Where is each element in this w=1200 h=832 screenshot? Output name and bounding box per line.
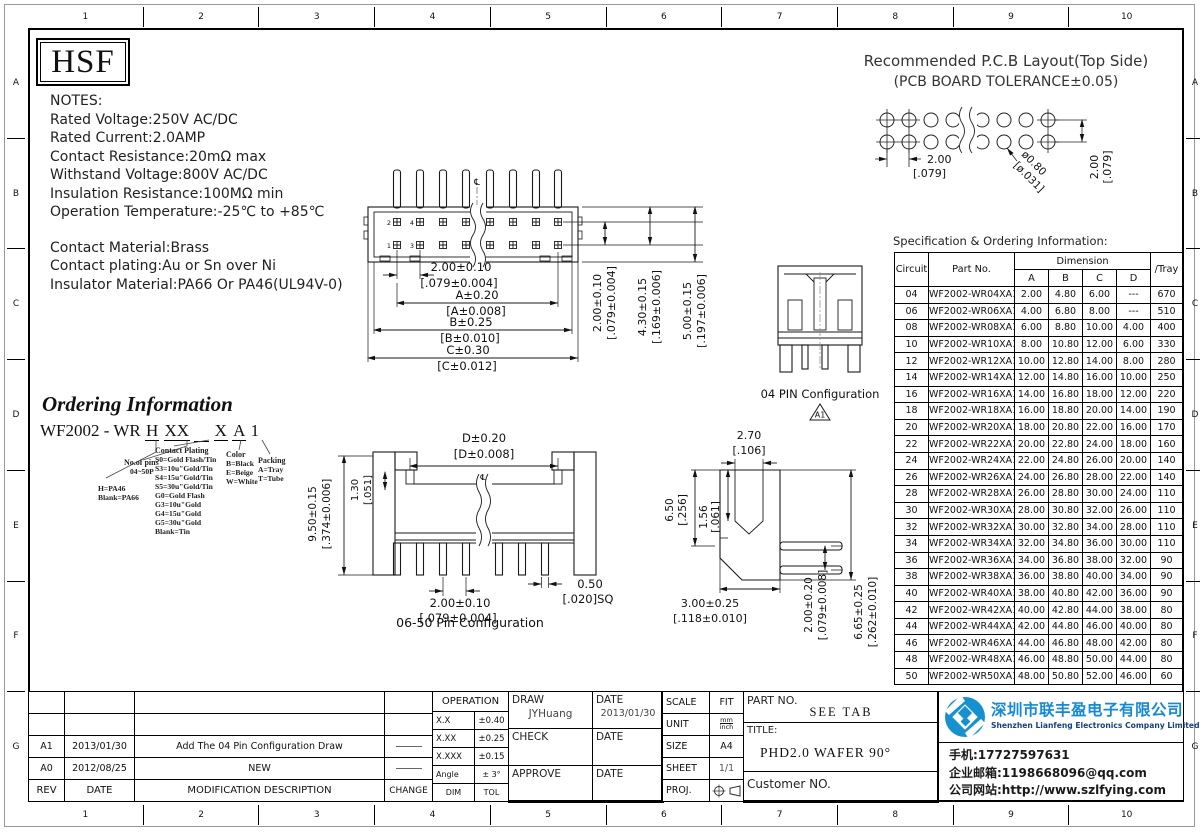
zone-row-label: G [7,692,25,802]
notes-lines: Rated Voltage:250V AC/DCRated Current:2.… [50,111,390,222]
tol-label: X.X [433,712,475,730]
plating-option: Blank=Tin [155,527,216,536]
tol-value: ±0.15 [475,748,509,766]
company-website: 公司网站:http://www.szlfying.com [949,782,1166,800]
rev-header: CHANGE [385,780,433,802]
zone-strip-right: ABCDEFG [1186,28,1200,802]
dim-b: B±0.25 [449,315,492,329]
dim-d: D±0.20 [462,431,506,445]
unit-inch: inch [720,724,734,731]
projection-label: PROJ. [663,780,710,802]
rev-header: REV [29,780,65,802]
spec-table-row: 04WF2002-WR04XA12.004.806.00---670 [895,287,1183,304]
spec-table-row: 36WF2002-WR36XA134.0036.8038.0032.0090 [895,552,1183,569]
size-value: A4 [710,736,744,758]
draw-name: JYHuang [509,708,592,720]
cfg06-label: 06-50 Pin Configuration [396,615,544,630]
zone-col-label: 10 [1069,805,1184,825]
zone-row-label: E [7,471,25,582]
tolerance-title: OPERATION [433,692,509,712]
check-date-cell: DATE [592,728,664,766]
zone-row-label: D [7,360,25,471]
date-label: DATE [596,694,623,706]
dim-pin-pitch-inch: [.079±0.008] [817,570,829,640]
color-legend: Color B=BlackE=BeigeW=White [226,450,258,486]
spec-header-tray: /Tray [1151,253,1183,287]
packing-legend-title: Packing [258,456,286,465]
dim-650: 6.50 [665,498,676,521]
company-name-cn: 深圳市联丰盈电子有限公司 [991,698,1183,720]
customer-label: Customer NO. [747,777,831,791]
spec-table-row: 10WF2002-WR10XA18.0010.8012.006.00330 [895,336,1183,353]
sheet-label: SHEET [663,758,710,780]
zone-row-label: G [1186,692,1200,802]
plating-option: G3=10u"Gold [155,500,216,509]
color-option: W=White [226,477,258,486]
zone-row-label: D [1186,360,1200,471]
dim-pin-sq: 0.50 [577,577,603,591]
zone-col-label: 5 [491,805,607,825]
hsf-logo: HSF [36,38,130,86]
unit-label: UNIT [663,714,710,736]
company-logo [943,695,987,739]
dim-v-pitch-inch: [.079±0.004] [605,266,618,340]
zone-col-label: 9 [954,805,1070,825]
date-label: DATE [596,731,623,743]
draw-label: DRAW [512,694,544,706]
zone-col-label: 10 [1069,7,1184,27]
front-view-drawing: 2 4 1 3 ℄ 2.00±0.10 [.079±0.004] A±0.20 … [355,125,755,377]
tol-value: ±0.25 [475,730,509,748]
unit-value: mminch [710,714,744,736]
zone-col-label: 7 [722,805,838,825]
color-option: B=Black [226,459,258,468]
spec-table-row: 08WF2002-WR08XA16.008.8010.004.00400 [895,320,1183,337]
spec-header-circuit: Circuit [895,253,929,287]
spec-table-row: 24WF2002-WR24XA122.0024.8026.0020.00140 [895,452,1183,469]
spec-table-row: 44WF2002-WR44XA142.0044.8046.0040.0080 [895,618,1183,635]
zone-strip-top: 12345678910 [28,7,1184,27]
centerline-icon: ℄ [473,178,480,188]
dim-v-500-inch: [.197±0.006] [695,274,708,348]
zone-row-label: F [7,582,25,693]
zone-col-label: 6 [607,805,723,825]
pcb-pitch-dim: 2.00 [927,153,952,166]
tolerance-block: OPERATION X.X±0.40 X.XX±0.25 X.XXX±0.15 … [432,691,509,802]
tol-value: TOL [475,784,509,802]
pcb-layout-subtitle: (PCB BOARD TOLERANCE±0.05) [830,74,1182,90]
draw-date-cell: DATE 2013/01/30 [592,691,664,729]
rev-header: MODIFICATION DESCRIPTION [135,780,385,802]
dim-pin-pitch: 2.00±0.10 [430,596,491,610]
spec-table-row: 06WF2002-WR06XA14.006.808.00---510 [895,303,1183,320]
rev-header: DATE [65,780,135,802]
spec-table-row: 40WF2002-WR40XA138.0040.8042.0036.0090 [895,585,1183,602]
rev-desc: Add The 04 Pin Configuration Draw [135,736,385,758]
spec-header-d: D [1117,270,1151,287]
meta-block: SCALEFIT UNIT mminch SIZEA4 SHEET1/1 PRO… [662,691,744,802]
customer-cell: Customer NO. [743,771,939,803]
zone-col-label: 8 [838,805,954,825]
dim-pin-pitch: 2.00±0.20 [803,577,815,633]
part-no-cell: PART NO. SEE TAB [743,691,939,723]
packing-option: T=Tube [258,474,286,483]
zone-row-label: A [1186,28,1200,139]
zone-col-label: 1 [28,7,144,27]
zone-col-label: 2 [144,805,260,825]
plating-option: S5=30u"Gold/Tin [155,482,216,491]
tol-label: X.XX [433,730,475,748]
dim-step-inch: [.051] [363,475,374,505]
side-view-drawing: 2.70 [.106] 6.50 [.256] 1.56 [.061] 3.00… [665,425,885,660]
dim-v-500: 5.00±0.15 [681,282,694,340]
color-legend-title: Color [226,450,258,459]
company-header: 深圳市联丰盈电子有限公司 Shenzhen Lianfeng Electroni… [939,692,1183,743]
sheet-value: 1/1 [710,758,744,780]
dim-overall: 6.65±0.25 [853,584,865,640]
part-block: PART NO. SEE TAB TITLE: PHD2.0 WAFER 90°… [743,691,938,801]
pins-legend: No.of pins 04~50P [124,458,159,476]
dim-slot-width-inch: [.106] [732,444,765,457]
pins-legend-title: No.of pins [124,458,159,467]
tol-value: ±0.40 [475,712,509,730]
rev-date: 2012/08/25 [65,758,135,780]
plating-option: G0=Gold Flash [155,491,216,500]
spec-table-row: 50WF2002-WR50XA148.0050.8052.0046.0060 [895,668,1183,685]
spec-table-row: 20WF2002-WR20XA118.0020.8022.0016.00170 [895,419,1183,436]
scale-label: SCALE [663,692,710,714]
spec-table-row: 22WF2002-WR22XA120.0022.8024.0018.00160 [895,436,1183,453]
spec-table-row: 28WF2002-WR28XA126.0028.8030.0024.00110 [895,486,1183,503]
tol-label: DIM [433,784,475,802]
rev-id: A1 [29,736,65,758]
spec-table-row: 14WF2002-WR14XA112.0014.8016.0010.00250 [895,369,1183,386]
change-dash [396,768,422,769]
spec-table: Circuit Part No. Dimension /Tray A B C D… [894,252,1183,685]
spec-table-row: 38WF2002-WR38XA136.0038.8040.0034.0090 [895,569,1183,586]
revision-empty-row [29,692,433,714]
scale-value: FIT [710,692,744,714]
dim-height-inch: [.374±0.006] [321,479,333,549]
spec-header-dimension: Dimension [1015,253,1151,270]
revision-header-row: REV DATE MODIFICATION DESCRIPTION CHANGE [29,780,433,802]
rev-date: 2013/01/30 [65,736,135,758]
zone-col-label: 2 [144,7,260,27]
draw-date: 2013/01/30 [593,708,663,719]
notes-line: Rated Voltage:250V AC/DC [50,111,390,130]
zone-strip-left: ABCDEFG [7,28,25,802]
material-option: Blank=PA66 [98,493,139,502]
dim-height: 9.50±0.15 [307,486,319,542]
zone-col-label: 5 [491,7,607,27]
cfg06-drawing: D±0.20 [D±0.008] ℄ 9.50±0.15 [.374±0.006… [300,428,680,633]
zone-col-label: 4 [375,805,491,825]
company-contact: 手机:17727597631 企业邮箱:1198668096@qq.com 公司… [949,747,1166,800]
dim-156: 1.56 [698,505,710,529]
material-notes: Contact Material:BrassContact plating:Au… [50,239,390,295]
pcb-layout-title: Recommended P.C.B Layout(Top Side) [830,52,1182,70]
zone-row-label: F [1186,582,1200,693]
pin-label-2: 2 [387,219,391,227]
zone-col-label: 1 [28,805,144,825]
company-phone: 手机:17727597631 [949,747,1166,765]
approve-label: APPROVE [512,768,561,780]
pin04-drawing: 04 PIN Configuration A1 [750,252,890,424]
pin04-label: 04 PIN Configuration [761,387,880,401]
size-label: SIZE [663,736,710,758]
plating-option: S0=Gold Flash/Tin [155,455,216,464]
company-block: 深圳市联丰盈电子有限公司 Shenzhen Lianfeng Electroni… [938,691,1184,801]
zone-row-label: E [1186,471,1200,582]
dim-300: 3.00±0.25 [681,597,739,610]
spec-table-row: 34WF2002-WR34XA132.0034.8036.0030.00110 [895,535,1183,552]
revision-flag: A1 [815,411,826,420]
rev-desc: NEW [135,758,385,780]
spec-table-row: 18WF2002-WR18XA116.0018.8020.0014.00190 [895,403,1183,420]
spec-table-row: 48WF2002-WR48XA146.0048.8050.0044.0080 [895,652,1183,669]
dim-overall-inch: [.262±0.010] [867,577,879,647]
check-label: CHECK [512,731,548,743]
notes-line: Contact Material:Brass [50,239,390,258]
spec-header-b: B [1049,270,1083,287]
date-label: DATE [596,768,623,780]
dim-v-430-inch: [.169±0.006] [650,270,663,344]
tol-label: Angle [433,766,475,784]
centerline-icon: ℄ [480,473,486,482]
signoff-block: DRAW JYHuang DATE 2013/01/30 CHECK DATE … [508,691,662,801]
notes-title: NOTES: [50,92,390,111]
dim-c-inch: [C±0.012] [437,359,497,373]
spec-table-row: 32WF2002-WR32XA130.0032.8034.0028.00110 [895,519,1183,536]
dim-step: 1.30 [350,479,361,501]
spec-header-a: A [1015,270,1049,287]
change-dash [396,746,422,747]
material-option: H=PA46 [98,484,139,493]
dim-pitch: 2.00±0.10 [431,260,492,274]
notes-line: Contact plating:Au or Sn over Ni [50,257,390,276]
notes-line: Contact Resistance:20mΩ max [50,148,390,167]
zone-row-label: B [7,139,25,250]
pin-label-3: 3 [410,242,414,250]
dim-v-430: 4.30±0.15 [636,278,649,336]
zone-col-label: 6 [607,7,723,27]
pcb-row-dim: 2.00 [1088,155,1101,180]
plating-option: G5=30u"Gold [155,518,216,527]
zone-row-label: A [7,28,25,139]
zone-col-label: 3 [259,805,375,825]
dim-650-inch: [.256] [677,494,689,526]
drawing-sheet: 12345678910 12345678910 ABCDEFG ABCDEFG … [0,0,1200,832]
spec-table-row: 12WF2002-WR12XA110.0012.8014.008.00280 [895,353,1183,370]
notes-line: Withstand Voltage:800V AC/DC [50,166,390,185]
plating-legend: Contact Plating S0=Gold Flash/TinS3=10u"… [155,446,216,536]
notes-line: Insulator Material:PA66 Or PA46(UL94V-0) [50,276,390,295]
company-email: 企业邮箱:1198668096@qq.com [949,765,1166,783]
pin-label-1: 1 [387,242,391,250]
zone-col-label: 4 [375,7,491,27]
revision-table: A1 2013/01/30 Add The 04 Pin Configurati… [28,691,433,802]
projection-value [710,780,744,802]
spec-table-row: 26WF2002-WR26XA124.0026.8028.0022.00140 [895,469,1183,486]
zone-row-label: C [7,249,25,360]
spec-table-row: 46WF2002-WR46XA144.0046.8048.0042.0080 [895,635,1183,652]
pcb-row-dim-inch: [.079] [1101,150,1114,183]
plating-option: G4=15u"Gold [155,509,216,518]
spec-table-row: 16WF2002-WR16XA114.0016.8018.0012.00220 [895,386,1183,403]
projection-symbol-icon [712,784,742,798]
dim-slot-width: 2.70 [737,429,762,442]
packing-legend: Packing A=TrayT=Tube [258,456,286,483]
notes-block: NOTES: Rated Voltage:250V AC/DCRated Cur… [50,92,390,294]
revision-row-a0: A0 2012/08/25 NEW [29,758,433,780]
tol-label: X.XXX [433,748,475,766]
title-cell: TITLE: PHD2.0 WAFER 90° [743,722,939,772]
company-name-en: Shenzhen Lianfeng Electronics Company Li… [991,721,1200,730]
notes-line: Insulation Resistance:100MΩ min [50,185,390,204]
tol-value: ± 3° [475,766,509,784]
rev-id: A0 [29,758,65,780]
approve-date-cell: DATE [592,765,664,803]
plating-legend-title: Contact Plating [155,446,216,455]
spec-table-row: 30WF2002-WR30XA128.0030.8032.0026.00110 [895,502,1183,519]
check-cell: CHECK [508,728,593,766]
revision-row-a1: A1 2013/01/30 Add The 04 Pin Configurati… [29,736,433,758]
spec-caption: Specification & Ordering Information: [893,234,1108,248]
ordering-title: Ordering Information [42,392,233,417]
plating-option: S4=15u"Gold/Tin [155,473,216,482]
color-option: E=Beige [226,468,258,477]
revision-empty-row [29,714,433,736]
dim-c: C±0.30 [446,343,489,357]
spec-header-c: C [1083,270,1117,287]
notes-line: Operation Temperature:-25℃ to +85℃ [50,203,390,222]
notes-line: Rated Current:2.0AMP [50,129,390,148]
zone-row-label: B [1186,139,1200,250]
pins-legend-range: 04~50P [124,467,159,476]
material-legend: H=PA46Blank=PA66 [98,484,139,502]
title-value: PHD2.0 WAFER 90° [760,745,891,761]
spec-table-row: 42WF2002-WR42XA140.0042.8044.0038.0080 [895,602,1183,619]
pcb-pitch-dim-inch: [.079] [913,167,946,180]
dim-v-pitch: 2.00±0.10 [591,274,604,332]
draw-cell: DRAW JYHuang [508,691,593,729]
plating-option: S3=10u"Gold/Tin [155,464,216,473]
dim-156-inch: [.061] [710,501,722,533]
dim-300-inch: [.118±0.010] [673,612,747,625]
pin-label-4: 4 [410,219,414,227]
pcb-layout-drawing: 2.00 [.079] ø0.80 [ø.031] 2.00 [.079] [855,95,1185,210]
spec-header-part: Part No. [929,253,1015,287]
hsf-logo-text: HSF [40,42,126,82]
dim-pin-sq-inch: [.020]SQ [563,592,614,606]
zone-col-label: 8 [838,7,954,27]
zone-col-label: 9 [954,7,1070,27]
packing-option: A=Tray [258,465,286,474]
part-no-value: SEE TAB [744,705,938,720]
dim-d-inch: [D±0.008] [454,447,514,461]
zone-row-label: C [1186,249,1200,360]
zone-strip-bottom: 12345678910 [28,805,1184,825]
title-label: TITLE: [747,725,777,736]
dim-a: A±0.20 [455,288,498,302]
zone-col-label: 3 [259,7,375,27]
zone-col-label: 7 [722,7,838,27]
approve-cell: APPROVE [508,765,593,803]
